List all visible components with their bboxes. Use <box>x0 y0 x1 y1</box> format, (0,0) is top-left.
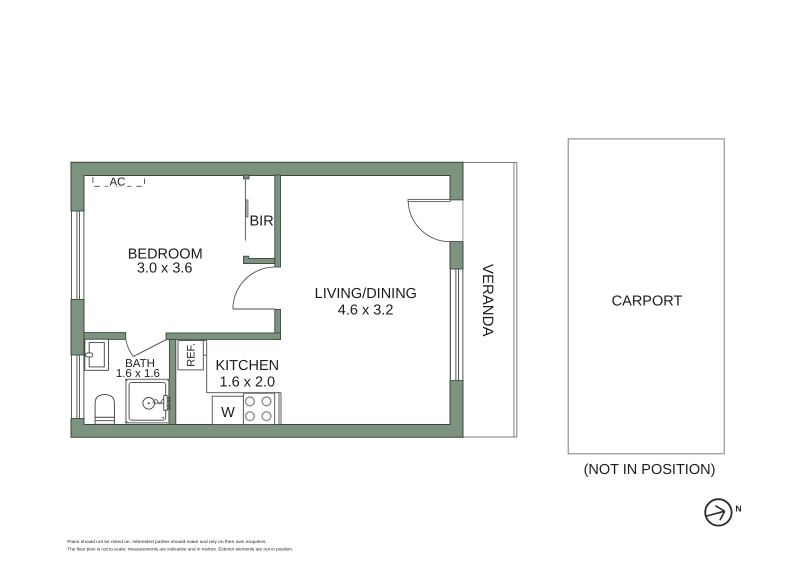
svg-text:1.6 x 1.6: 1.6 x 1.6 <box>116 368 160 380</box>
svg-text:1.6 x 2.0: 1.6 x 2.0 <box>219 375 275 391</box>
svg-text:REF.: REF. <box>186 343 198 367</box>
svg-text:LIVING/DINING: LIVING/DINING <box>315 286 417 302</box>
svg-text:CARPORT: CARPORT <box>612 293 683 309</box>
svg-text:4.6 x 3.2: 4.6 x 3.2 <box>338 302 394 318</box>
svg-text:VERANDA: VERANDA <box>479 264 496 337</box>
svg-text:AC: AC <box>110 177 126 189</box>
svg-text:W: W <box>221 405 235 421</box>
svg-text:3.0 x 3.6: 3.0 x 3.6 <box>137 260 193 276</box>
svg-text:Plans should not be relied on.: Plans should not be relied on. Intereste… <box>67 539 267 544</box>
svg-text:N: N <box>735 504 741 514</box>
svg-text:KITCHEN: KITCHEN <box>215 358 279 374</box>
svg-text:The floor plan is not to scale: The floor plan is not to scale; measurem… <box>67 547 293 552</box>
svg-text:(NOT IN POSITION): (NOT IN POSITION) <box>584 462 716 478</box>
svg-text:BIR: BIR <box>250 214 274 230</box>
